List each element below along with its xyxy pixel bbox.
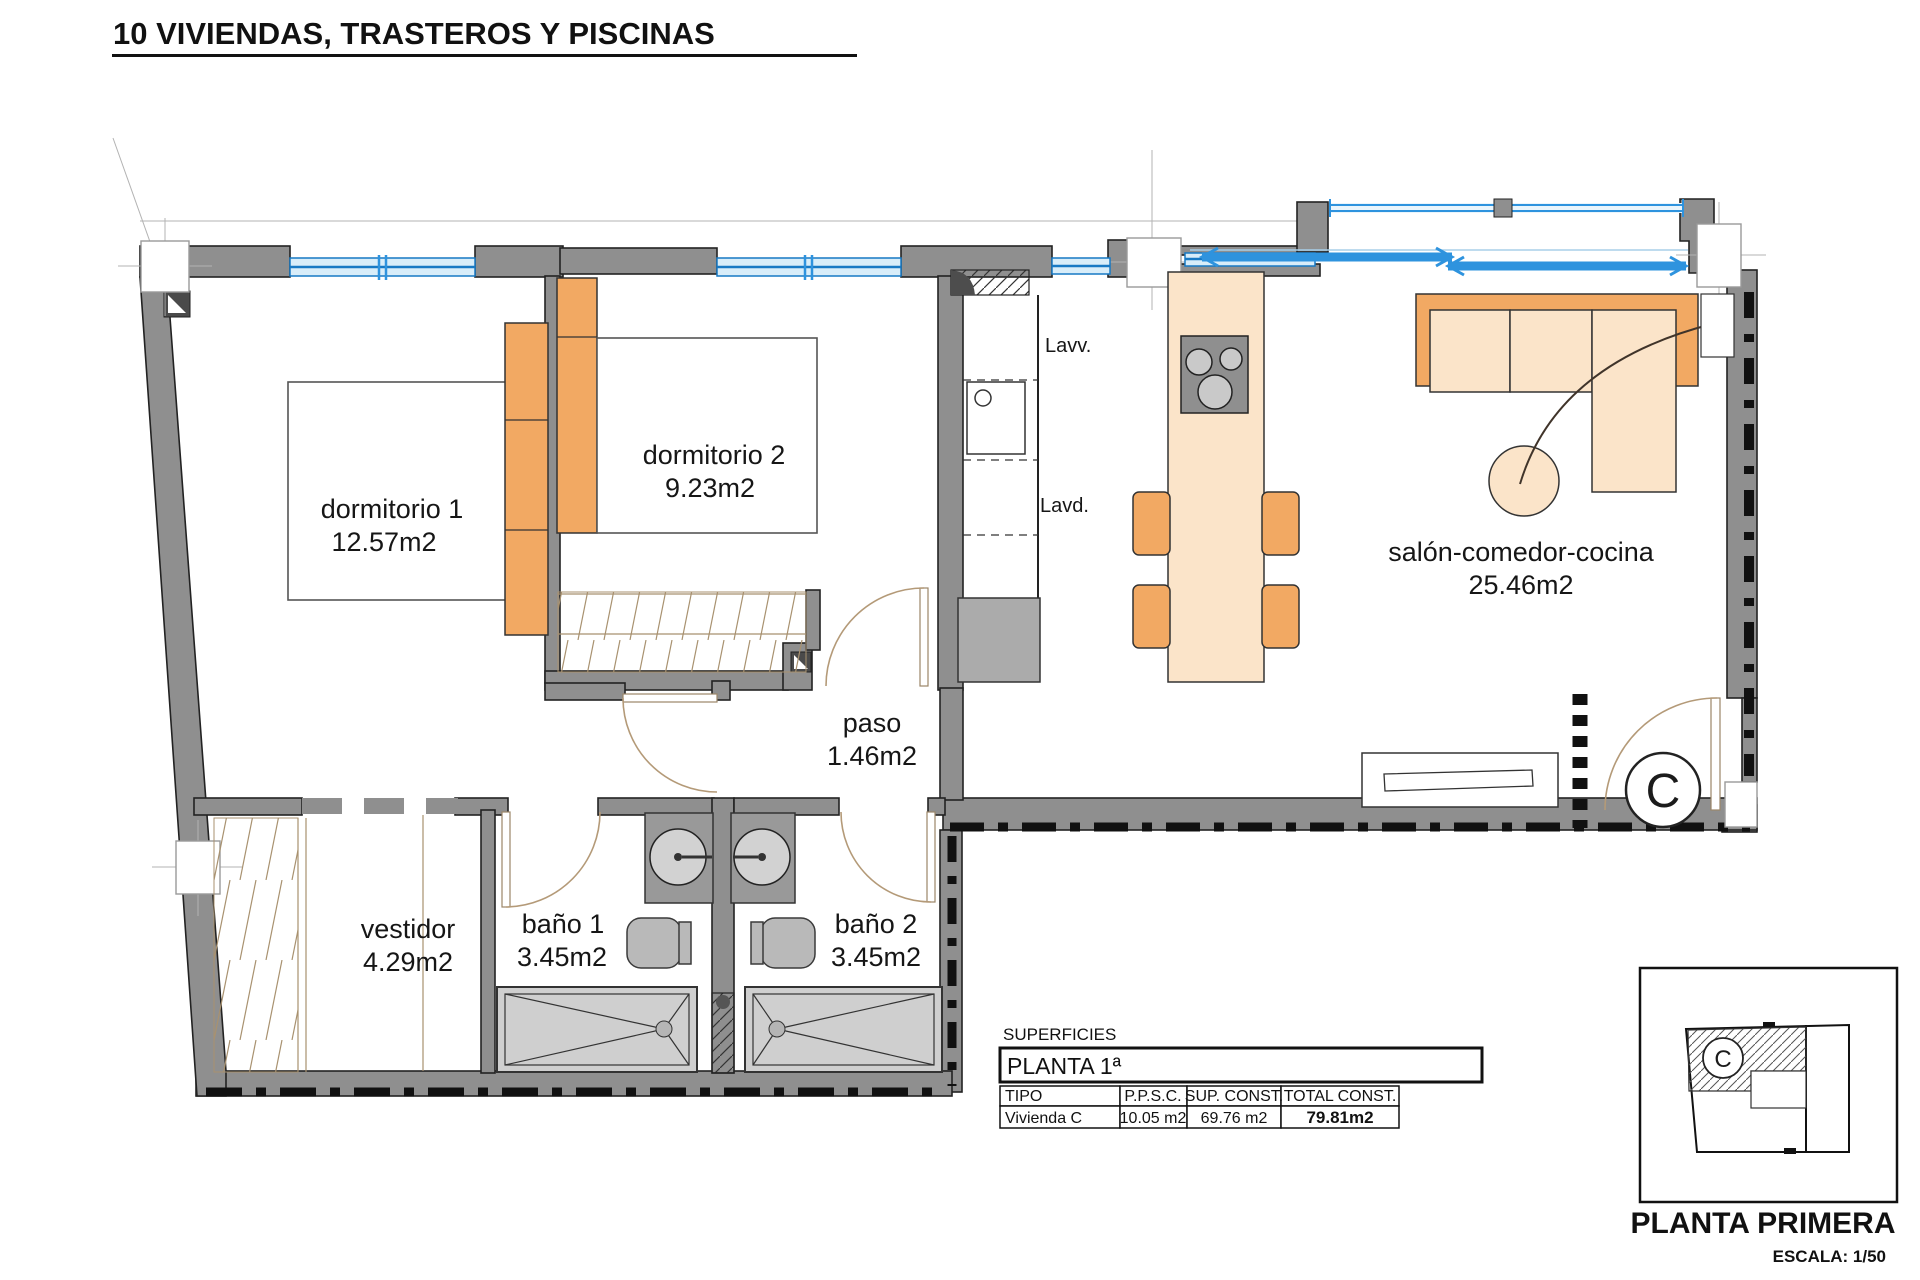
sofa (1416, 294, 1698, 492)
vestidor-wardrobe-hatch (214, 818, 298, 1072)
side-table (1489, 446, 1559, 516)
surfaces-caption: SUPERFICIES (1003, 1025, 1116, 1044)
wardrobe-dormitorio1 (505, 323, 548, 635)
kitchen-island (1133, 272, 1299, 682)
cooktop (1181, 336, 1248, 413)
label-paso-area: 1.46m2 (827, 741, 917, 771)
key-plan-unit-letter: C (1714, 1046, 1731, 1073)
label-paso-name: paso (843, 708, 902, 738)
page-title: 10 VIVIENDAS, TRASTEROS Y PISCINAS (113, 16, 715, 51)
chair (1262, 492, 1299, 555)
door-arc-bano1 (506, 812, 600, 907)
window-dormitorio1 (290, 255, 475, 280)
label-vestidor-area: 4.29m2 (363, 947, 453, 977)
label-dormitorio2-area: 9.23m2 (665, 473, 755, 503)
chair (1133, 492, 1170, 555)
toilet-bano2 (751, 918, 815, 968)
door-leaf-dormitorio1 (623, 694, 717, 702)
label-bano1-area: 3.45m2 (517, 942, 607, 972)
label-salon-area: 25.46m2 (1468, 570, 1573, 600)
pillar-top-left (141, 241, 189, 292)
closet-dormitorio2 (558, 592, 806, 672)
cell-sup-const: 69.76 m2 (1201, 1110, 1268, 1127)
label-bano2-name: baño 2 (835, 909, 918, 939)
key-plan-title: PLANTA PRIMERA (1631, 1207, 1896, 1240)
label-lavd: Lavd. (1040, 495, 1089, 517)
bed-dormitorio1 (288, 382, 510, 600)
corner-block-topleft (164, 291, 190, 317)
shaft (712, 993, 734, 1073)
pillar-top-right (1697, 224, 1741, 287)
col-ppsc: P.P.S.C. (1124, 1088, 1181, 1105)
surfaces-floor: PLANTA 1ª (1007, 1053, 1122, 1079)
window-laundry (1052, 258, 1110, 274)
title-underline (112, 54, 857, 57)
bed-dormitorio2 (597, 338, 817, 533)
terrace-glazing (1330, 199, 1683, 217)
washing-machine (967, 382, 1025, 454)
shower-bano2 (745, 987, 942, 1072)
col-tipo: TIPO (1005, 1088, 1042, 1105)
cell-tipo: Vivienda C (1005, 1110, 1082, 1127)
cell-ppsc: 10.05 m2 (1120, 1110, 1187, 1127)
label-dormitorio1-area: 12.57m2 (331, 527, 436, 557)
label-bano2-area: 3.45m2 (831, 942, 921, 972)
door-arc-bano2 (841, 812, 931, 902)
sink-bano1 (645, 813, 713, 903)
cell-total-const: 79.81m2 (1306, 1108, 1373, 1127)
floor-plan-canvas: 10 VIVIENDAS, TRASTEROS Y PISCINAS (0, 0, 1920, 1280)
tv-console (1362, 753, 1558, 807)
shower-bano1 (497, 987, 697, 1072)
window-dormitorio2 (717, 255, 901, 280)
door-arc-dormitorio2 (826, 588, 924, 686)
shelf-hatch (951, 270, 1029, 295)
label-vestidor-name: vestidor (361, 914, 456, 944)
label-lavv: Lavv. (1045, 335, 1091, 357)
key-plan-scale: ESCALA: 1/50 (1773, 1247, 1886, 1266)
col-sup-const: SUP. CONST. (1185, 1088, 1283, 1105)
label-salon-name: salón-comedor-cocina (1388, 537, 1655, 567)
wall-unit (1701, 294, 1734, 357)
entrance-door-leaf (1711, 698, 1720, 810)
col-total-const: TOTAL CONST. (1284, 1088, 1397, 1105)
laundry-column: Lavv. Lavd. (951, 270, 1091, 682)
door-leaf-dormitorio2 (920, 588, 928, 686)
room-dormitorio1 (288, 323, 548, 635)
key-plan: C PLANTA PRIMERA ESCALA: 1/50 (1631, 968, 1898, 1266)
door-leaf-bano2 (927, 812, 935, 902)
label-bano1-name: baño 1 (522, 909, 605, 939)
pillar-left (176, 841, 220, 894)
wardrobe-dormitorio2 (557, 278, 597, 533)
label-dormitorio1-name: dormitorio 1 (321, 494, 464, 524)
dryer-appliance (958, 598, 1040, 682)
surfaces-table: SUPERFICIES PLANTA 1ª TIPO P.P.S.C. SUP.… (1000, 1025, 1482, 1128)
chair (1133, 585, 1170, 648)
floor-plan-page: 10 VIVIENDAS, TRASTEROS Y PISCINAS (0, 0, 1920, 1280)
door-arc-dormitorio1 (623, 698, 717, 792)
entrance-threshold (1725, 782, 1757, 827)
unit-letter: C (1646, 765, 1681, 818)
label-dormitorio2-name: dormitorio 2 (643, 440, 786, 470)
sink-bano2 (731, 813, 795, 903)
door-leaf-bano1 (502, 812, 510, 907)
toilet-bano1 (627, 918, 691, 968)
chair (1262, 585, 1299, 648)
